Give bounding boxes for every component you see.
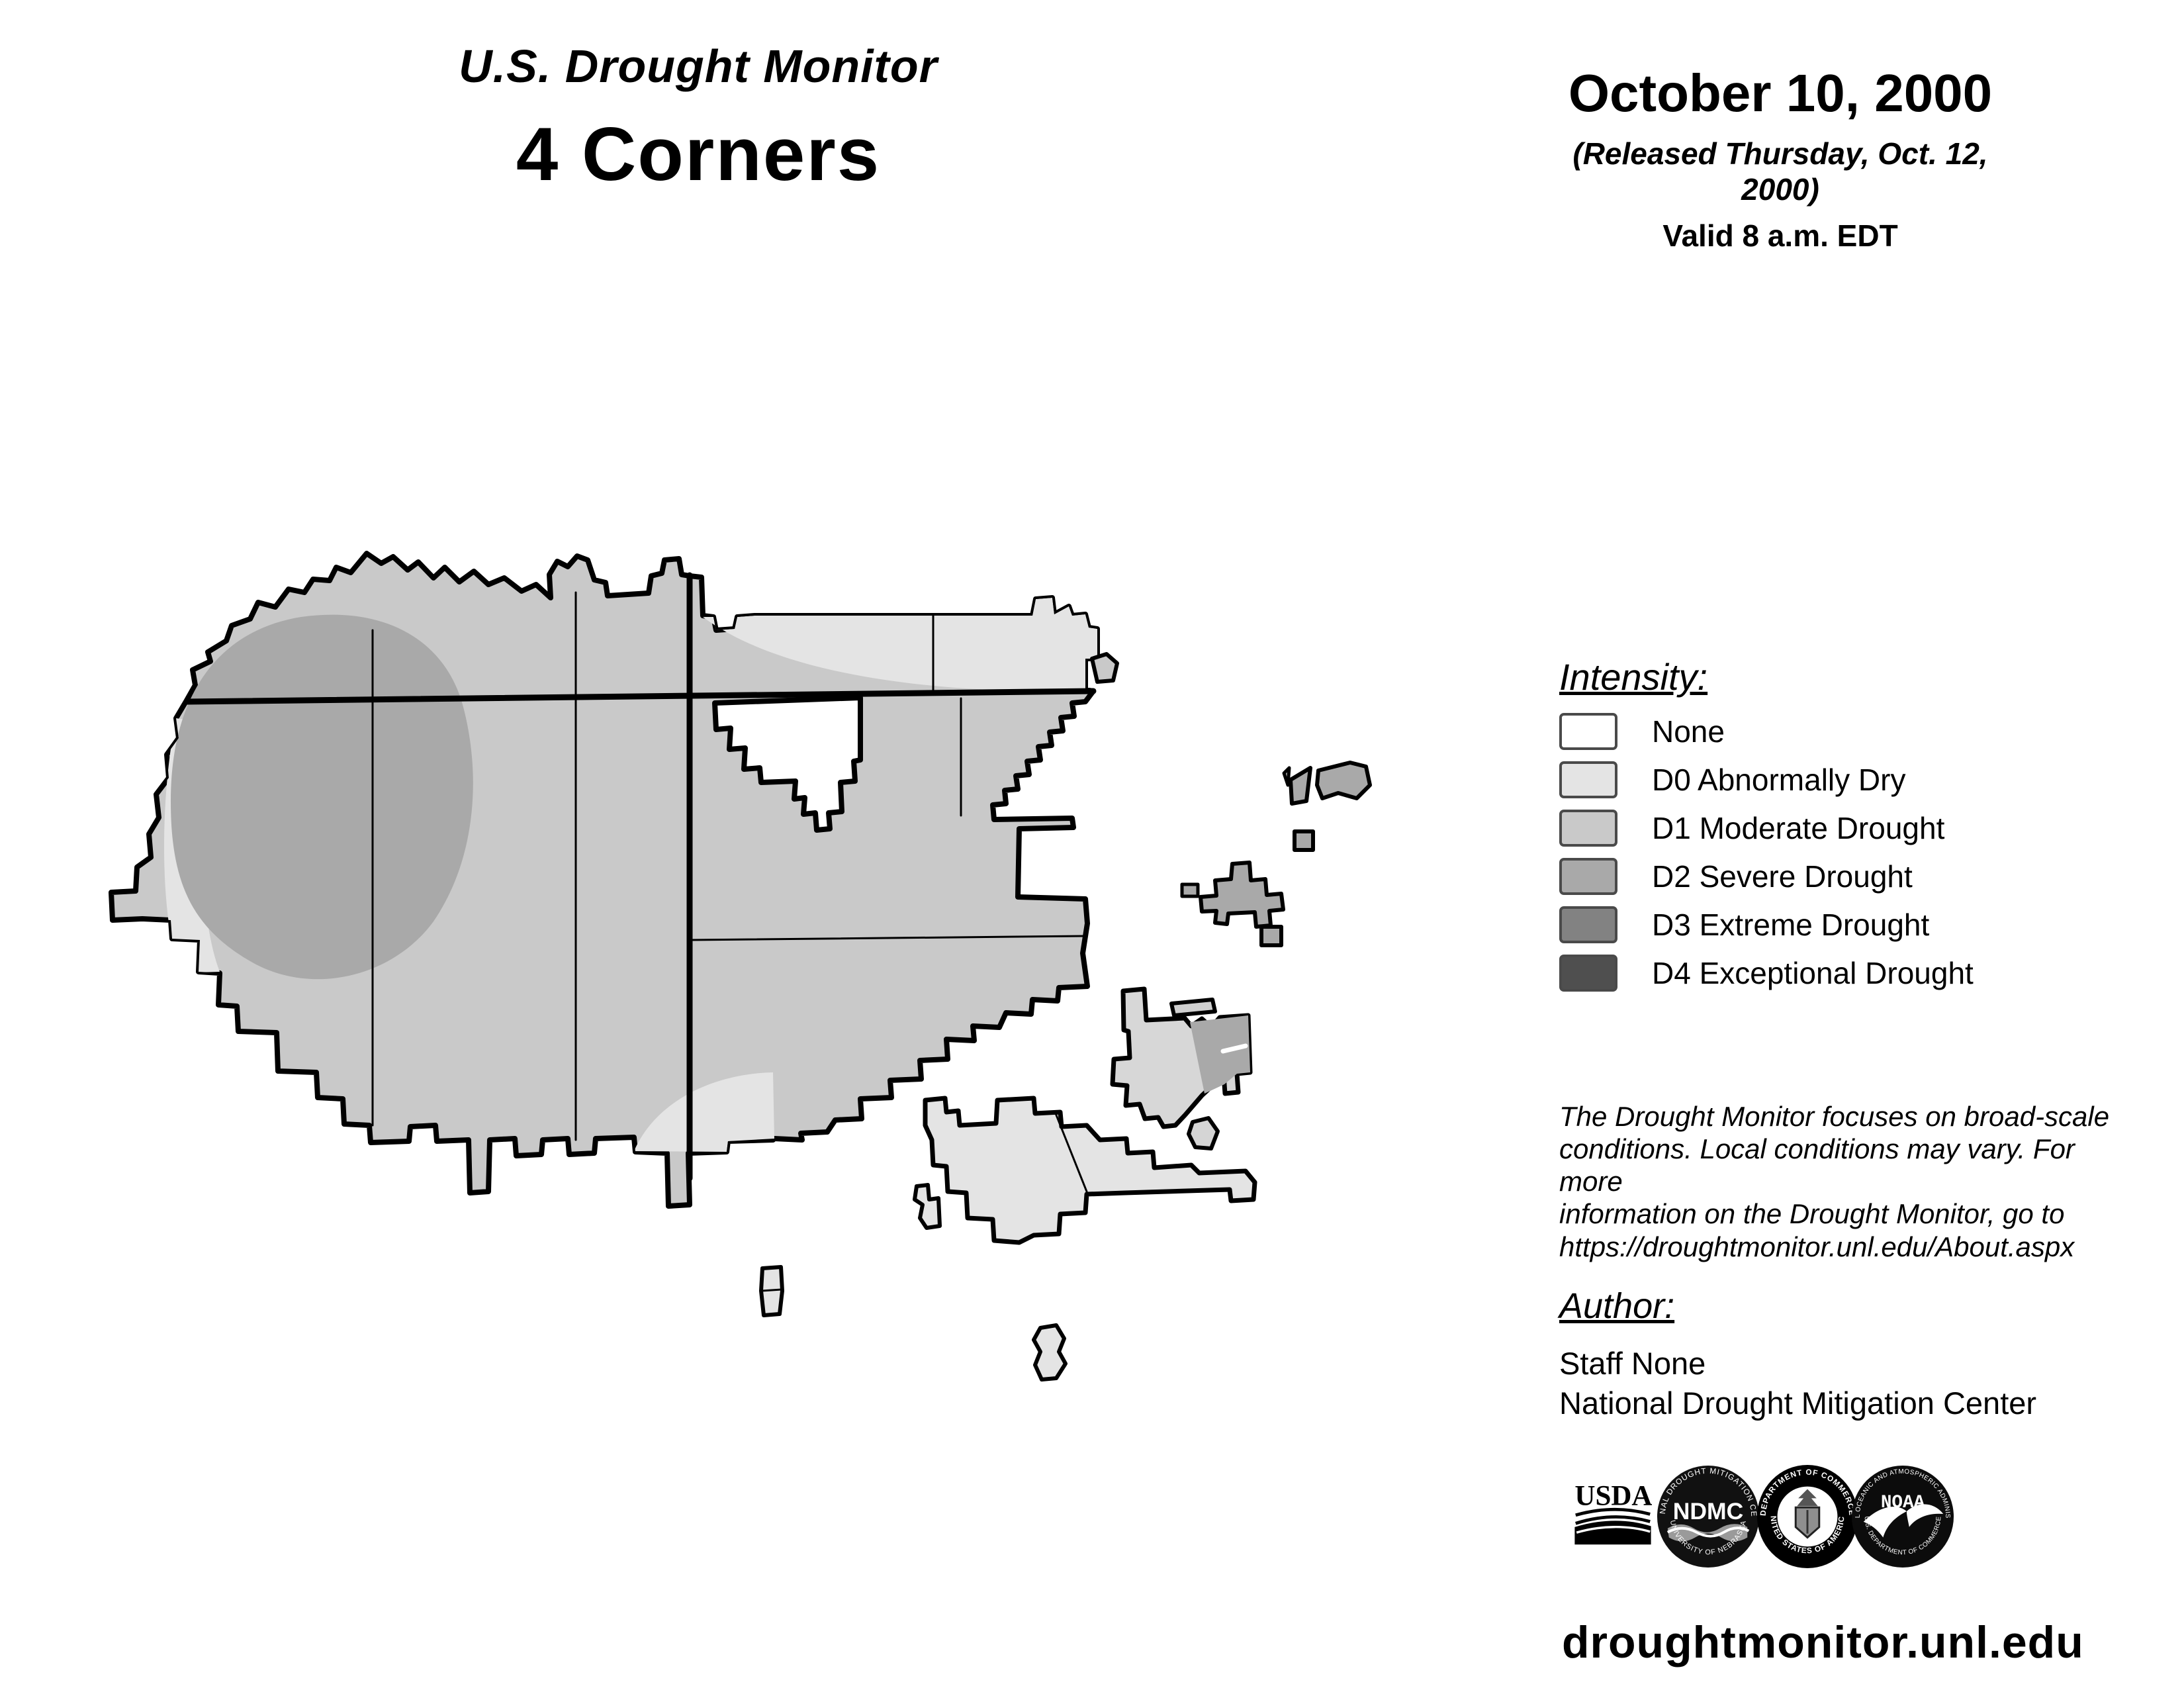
- legend-item-none: None: [1559, 707, 2089, 755]
- satellite-d2-arrow-sliver: [1284, 768, 1289, 785]
- disclaimer-line: conditions. Local conditions may vary. F…: [1559, 1133, 2128, 1197]
- legend-swatch-d4: [1559, 955, 1617, 992]
- satellite-d2-bit-west: [1182, 884, 1198, 896]
- satellite-d2-arrow: [1291, 768, 1310, 804]
- dept-of-commerce-logo: DEPARTMENT OF COMMERCE UNITED STATES OF …: [1755, 1464, 1860, 1569]
- satellite-d2-cross-square: [1261, 927, 1281, 945]
- satellite-d2-square: [1295, 831, 1313, 850]
- author-name: Staff None: [1559, 1345, 1706, 1382]
- legend: NoneD0 Abnormally DryD1 Moderate Drought…: [1559, 707, 2089, 997]
- disclaimer-line: The Drought Monitor focuses on broad-sca…: [1559, 1100, 2128, 1133]
- legend-item-d0: D0 Abnormally Dry: [1559, 755, 2089, 804]
- legend-label: D1 Moderate Drought: [1652, 810, 1944, 846]
- legend-heading: Intensity:: [1559, 655, 1707, 698]
- disclaimer-link: https://droughtmonitor.unl.edu/About.asp…: [1559, 1231, 2128, 1263]
- usda-logo: USDA: [1574, 1477, 1652, 1558]
- author-heading: Author:: [1559, 1286, 1674, 1327]
- noaa-logo: NATIONAL OCEANIC AND ATMOSPHERIC ADMINIS…: [1850, 1464, 1955, 1569]
- legend-item-d1: D1 Moderate Drought: [1559, 804, 2089, 852]
- author-organization: National Drought Mitigation Center: [1559, 1385, 2036, 1421]
- satellite-d0-isolated-south: [1034, 1325, 1066, 1380]
- legend-swatch-d2: [1559, 858, 1617, 895]
- satellite-d1-pentagon-south: [1189, 1118, 1218, 1149]
- legend-label: D3 Extreme Drought: [1652, 907, 1929, 943]
- satellite-d0-hook: [915, 1185, 940, 1228]
- disclaimer-line: information on the Drought Monitor, go t…: [1559, 1197, 2128, 1230]
- legend-swatch-none: [1559, 713, 1617, 750]
- legend-label: D4 Exceptional Drought: [1652, 955, 1974, 991]
- legend-swatch-d1: [1559, 810, 1617, 847]
- d2-core-northwest: [171, 615, 473, 980]
- legend-item-d4: D4 Exceptional Drought: [1559, 949, 2089, 997]
- satellite-d2-bean: [1317, 763, 1370, 798]
- usda-logo-text: USDA: [1574, 1481, 1652, 1512]
- legend-label: D2 Severe Drought: [1652, 859, 1913, 894]
- legend-label: D0 Abnormally Dry: [1652, 762, 1905, 798]
- ndmc-logo: NATIONAL DROUGHT MITIGATION CENTER NDMC …: [1656, 1464, 1760, 1569]
- legend-item-d3: D3 Extreme Drought: [1559, 900, 2089, 949]
- footer-url: droughtmonitor.unl.edu: [1562, 1617, 2065, 1668]
- satellite-d0-below-main-line: [762, 1289, 782, 1291]
- legend-item-d2: D2 Severe Drought: [1559, 852, 2089, 900]
- legend-swatch-d0: [1559, 761, 1617, 798]
- legend-label: None: [1652, 714, 1725, 749]
- disclaimer-text: The Drought Monitor focuses on broad-sca…: [1559, 1100, 2128, 1263]
- satellite-d2-cross: [1201, 863, 1283, 927]
- satellite-d1-lozenge: [1171, 1000, 1215, 1015]
- legend-swatch-d3: [1559, 906, 1617, 943]
- ndmc-center-text: NDMC: [1673, 1498, 1744, 1524]
- satellite-d1-pentagon-ne: [1092, 654, 1117, 682]
